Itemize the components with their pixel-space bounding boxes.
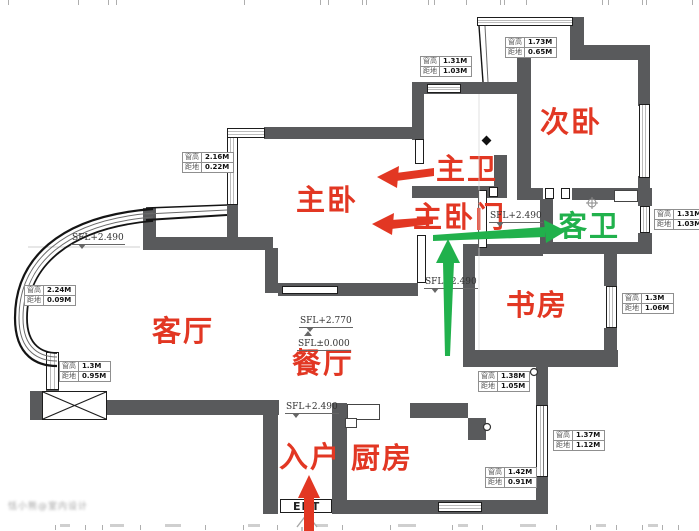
green-arrow-vertical: [436, 239, 460, 356]
floor-plan: ENT 窗高2.16M 距地0.22M 窗高1.31M 距地1.03M 窗高1.…: [0, 0, 699, 531]
annotation-arrows: [0, 0, 699, 531]
red-arrow-entrance: [298, 475, 320, 531]
green-arrow-guest-bath: [433, 220, 566, 243]
red-arrow-master-bedroom-door: [372, 213, 433, 235]
red-arrow-master-bath: [377, 166, 434, 188]
